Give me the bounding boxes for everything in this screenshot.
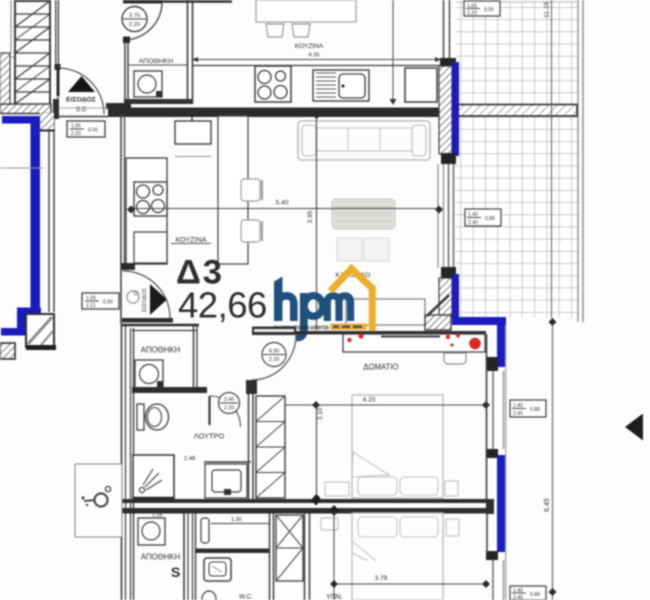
svg-text:11.15: 11.15	[544, 1, 551, 18]
svg-text:5.40: 5.40	[276, 200, 289, 207]
svg-text:2.20: 2.20	[71, 131, 81, 137]
svg-text:3.75: 3.75	[129, 13, 140, 19]
svg-text:ΕΙΣΟΔΟΣ: ΕΙΣΟΔΟΣ	[142, 287, 148, 312]
svg-text:W.C.: W.C.	[239, 594, 253, 600]
svg-text:2.40: 2.40	[513, 595, 523, 600]
svg-text:2.40: 2.40	[468, 220, 478, 226]
svg-text:2.40: 2.40	[513, 411, 523, 417]
svg-text:3.10: 3.10	[317, 407, 324, 420]
svg-text:2.48: 2.48	[184, 456, 195, 462]
svg-text:1.30: 1.30	[231, 517, 242, 523]
svg-text:ΛΟΥΤΡΟ: ΛΟΥΤΡΟ	[194, 432, 225, 441]
svg-text:2.20: 2.20	[467, 11, 477, 17]
svg-text:ΕΙΣΟΔΟΣ: ΕΙΣΟΔΟΣ	[66, 97, 96, 104]
svg-text:0.0: 0.0	[76, 107, 86, 114]
svg-text:1.05: 1.05	[71, 124, 81, 130]
svg-text:1.40: 1.40	[468, 212, 478, 218]
svg-text:2.21: 2.21	[86, 303, 96, 309]
svg-text:ΥΠΝ.: ΥΠΝ.	[326, 594, 343, 600]
svg-text:1.05: 1.05	[467, 4, 477, 10]
svg-text:ΑΠΟΘΗΚΗ: ΑΠΟΘΗΚΗ	[141, 346, 180, 355]
svg-text:ΚΟΥΖΙΝΑ: ΚΟΥΖΙΝΑ	[175, 235, 206, 244]
svg-text:0.00: 0.00	[484, 7, 494, 13]
svg-text:0.88: 0.88	[485, 216, 495, 222]
svg-text:42,66: 42,66	[178, 285, 267, 326]
svg-text:2.20: 2.20	[129, 22, 140, 28]
svg-text:1.40: 1.40	[513, 588, 523, 594]
svg-text:0.88: 0.88	[530, 592, 540, 598]
svg-text:ΑΠΟΘΗΚΗ: ΑΠΟΘΗΚΗ	[141, 553, 180, 562]
svg-text:0.88: 0.88	[530, 407, 540, 413]
svg-text:0.00: 0.00	[88, 128, 98, 134]
svg-text:ΑΠΟΘΗΚΗ: ΑΠΟΘΗΚΗ	[139, 58, 173, 65]
svg-text:1.05: 1.05	[152, 513, 163, 519]
svg-text:ΔΩΜΑΤΙΟ: ΔΩΜΑΤΙΟ	[363, 363, 398, 372]
svg-text:4.20: 4.20	[363, 397, 376, 404]
svg-text:1.40: 1.40	[513, 403, 523, 409]
svg-text:4.90: 4.90	[269, 349, 280, 355]
svg-text:3.65: 3.65	[307, 210, 314, 223]
svg-text:1.05: 1.05	[86, 296, 96, 302]
svg-text:2.20: 2.20	[224, 406, 234, 412]
svg-text:4.35: 4.35	[308, 53, 319, 59]
svg-text:S: S	[171, 564, 180, 580]
svg-text:0.00: 0.00	[103, 300, 113, 306]
svg-text:2.20: 2.20	[269, 357, 280, 363]
svg-text:3.79: 3.79	[375, 575, 388, 582]
svg-text:ΚΟΥΖΙΝΑ: ΚΟΥΖΙΝΑ	[295, 43, 324, 50]
svg-text:6.45: 6.45	[544, 498, 551, 512]
svg-text:3.40: 3.40	[224, 397, 234, 403]
